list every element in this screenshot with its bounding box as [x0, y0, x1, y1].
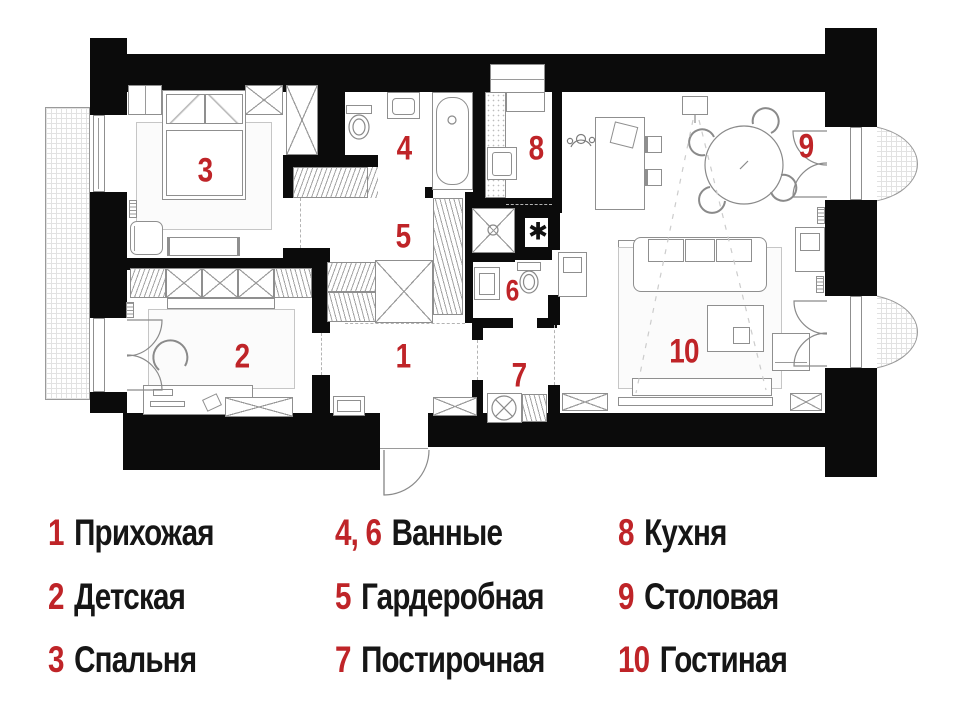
bathtub — [432, 92, 473, 190]
legend-item: 9Столовая — [618, 576, 779, 618]
hall-closet-upper — [327, 262, 377, 292]
legend-label: Кухня — [644, 512, 727, 553]
asterisk-marker: ✱ — [528, 218, 548, 247]
dining-chair-se — [771, 175, 796, 201]
kitchen-upper-cabinet — [506, 92, 545, 112]
threshold-bedroom-wardrobe — [300, 198, 301, 248]
dining-cabinet — [558, 252, 587, 297]
legend-item: 4, 6Ванные — [335, 512, 502, 554]
legend-label: Ванные — [392, 512, 503, 553]
floor-plan-page: 1 2 3 4 5 6 7 8 9 10 ✱ 1Прихожая 2Детска… — [0, 0, 960, 720]
radiator-living — [816, 276, 824, 293]
bay-door-frame-top — [850, 127, 862, 200]
legend-num: 8 — [618, 512, 634, 553]
hall-closet-lower — [327, 292, 377, 322]
toilet1-tank — [346, 105, 372, 114]
legend-num: 4, 6 — [335, 512, 381, 553]
legend-label: Спальня — [74, 639, 196, 680]
kitchen-sink — [487, 147, 517, 180]
bedroom-wardrobe-column — [286, 85, 318, 155]
pilaster-box-left — [562, 393, 608, 411]
desk-item-keyboard — [150, 401, 185, 407]
boundary-wardrobe-hall — [345, 323, 465, 324]
children-wardrobe-box-2 — [202, 268, 238, 298]
legend-item: 8Кухня — [618, 512, 727, 554]
legend-num: 10 — [618, 639, 649, 680]
wall-living-left-b — [548, 295, 560, 325]
washing-machine — [487, 393, 522, 423]
bedroom-cabinet-right — [245, 85, 283, 115]
legend-num: 2 — [48, 576, 64, 617]
floor-plan: 1 2 3 4 5 6 7 8 9 10 ✱ — [0, 0, 960, 505]
floor-lamp — [682, 96, 708, 115]
bed-pillow-left — [166, 94, 205, 124]
pilaster-box-right — [790, 393, 822, 411]
children-wardrobe-right — [274, 268, 312, 298]
wall-bottom-left — [123, 413, 380, 470]
tv-console — [632, 378, 772, 396]
legend-num: 7 — [335, 639, 351, 680]
dining-chair-sw — [699, 187, 725, 213]
legend-label: Столовая — [644, 576, 778, 617]
bar-stool-2 — [645, 169, 662, 186]
wall-bedroom-right-upper — [283, 155, 293, 198]
bed-bench — [167, 237, 240, 256]
legend-item: 3Спальня — [48, 639, 196, 681]
room-marker-6: 6 — [506, 274, 519, 308]
bathroom2-sink — [474, 267, 500, 300]
entry-door-arc — [384, 450, 429, 495]
wall-children-hall-lower — [312, 375, 330, 420]
legend-item: 5Гардеробная — [335, 576, 544, 618]
entry-threshold-line — [380, 448, 428, 449]
children-wardrobe-box-3 — [238, 268, 274, 298]
bay1-door-leaf-2 — [793, 163, 827, 197]
legend-num: 5 — [335, 576, 351, 617]
bedroom-armchair — [130, 221, 163, 255]
wall-living-left-c — [548, 385, 560, 413]
shower-tray — [472, 208, 515, 253]
children-rug — [148, 309, 295, 389]
dining-chair-ne — [753, 108, 779, 133]
toilet2-tank — [517, 262, 541, 271]
children-shelf — [167, 298, 275, 309]
bar-stool-1 — [645, 136, 662, 153]
wall-hall-laundry-upper — [472, 327, 483, 340]
threshold-kitchen-pass — [506, 204, 552, 205]
bed-pillow-right — [205, 94, 243, 124]
wall-shower-top — [472, 198, 515, 208]
window-frame-bedroom — [93, 115, 105, 192]
wall-kitchen-dining — [552, 92, 562, 213]
wall-asterisk-bottom — [515, 247, 552, 260]
bay-door-frame-bottom — [850, 296, 862, 368]
room-marker-5: 5 — [396, 218, 411, 257]
legend-num: 9 — [618, 576, 634, 617]
toilet2-bowl — [520, 271, 538, 293]
legend-item: 1Прихожая — [48, 512, 214, 554]
tv-panel — [618, 397, 773, 406]
wall-living-left-a — [548, 213, 560, 250]
threshold-children-hall — [321, 333, 322, 375]
dining-table — [705, 126, 783, 204]
room-marker-10: 10 — [669, 333, 698, 372]
living-shelf-right — [795, 227, 825, 272]
radiator-children — [126, 302, 134, 318]
wall-top — [90, 54, 825, 92]
bathroom1-sink — [387, 92, 420, 119]
balcony-door-frame-children — [93, 318, 105, 392]
wardrobe-storage-box — [375, 260, 433, 323]
room-marker-1: 1 — [396, 338, 411, 377]
children-cabinet — [225, 397, 293, 417]
children-wardrobe-box-1 — [166, 268, 202, 298]
room-marker-7: 7 — [512, 357, 527, 396]
window-glass-line — [98, 118, 99, 189]
toilet1-bowl — [349, 115, 369, 139]
legend-label: Постирочная — [361, 639, 545, 680]
doormat — [333, 396, 365, 416]
radiator-dining — [817, 207, 825, 224]
legend-label: Гардеробная — [361, 576, 544, 617]
bedroom-cabinet-left — [128, 85, 162, 115]
legend-num: 1 — [48, 512, 64, 553]
legend-label: Детская — [74, 576, 185, 617]
legend-item: 7Постирочная — [335, 639, 545, 681]
sofa-cushion-3 — [716, 239, 752, 262]
room-marker-3: 3 — [198, 152, 213, 191]
legend-label: Гостиная — [660, 639, 787, 680]
threshold-hall-laundry — [477, 340, 478, 380]
wall-bath1-kitchen — [473, 92, 485, 198]
wardrobe-rack-right — [433, 198, 463, 315]
kitchen-counter — [485, 92, 506, 198]
person-figure — [567, 135, 594, 148]
living-armchair — [772, 333, 810, 371]
desk-item-monitor — [153, 389, 173, 396]
hall-bench-box — [433, 397, 477, 416]
threshold-living-pass — [554, 325, 555, 385]
sofa-cushion-2 — [685, 239, 715, 262]
wall-shower-asterisk — [515, 208, 525, 247]
coffee-table — [707, 305, 764, 352]
bay2-door-leaf-1 — [794, 301, 827, 334]
wall-right — [825, 28, 877, 477]
legend-item: 2Детская — [48, 576, 185, 618]
children-wardrobe-left — [130, 268, 166, 298]
legend: 1Прихожая 2Детская 3Спальня 4, 6Ванные 5… — [0, 498, 960, 720]
left-balcony — [45, 107, 90, 400]
laundry-hatch — [522, 394, 547, 422]
room-marker-8: 8 — [529, 130, 544, 169]
sofa-cushion-1 — [648, 239, 684, 262]
wall-closet-toilet — [318, 85, 345, 155]
radiator-bedroom — [129, 200, 137, 218]
wardrobe-closet-top — [293, 167, 368, 198]
room-marker-4: 4 — [397, 130, 412, 169]
legend-num: 3 — [48, 639, 64, 680]
legend-label: Прихожая — [74, 512, 214, 553]
wall-shower-bath2 — [472, 253, 515, 262]
wall-under-nook — [283, 155, 378, 167]
room-marker-9: 9 — [799, 128, 814, 167]
legend-item: 10Гостиная — [618, 639, 787, 681]
room-marker-2: 2 — [235, 338, 250, 377]
dining-chair-nw — [689, 129, 714, 155]
